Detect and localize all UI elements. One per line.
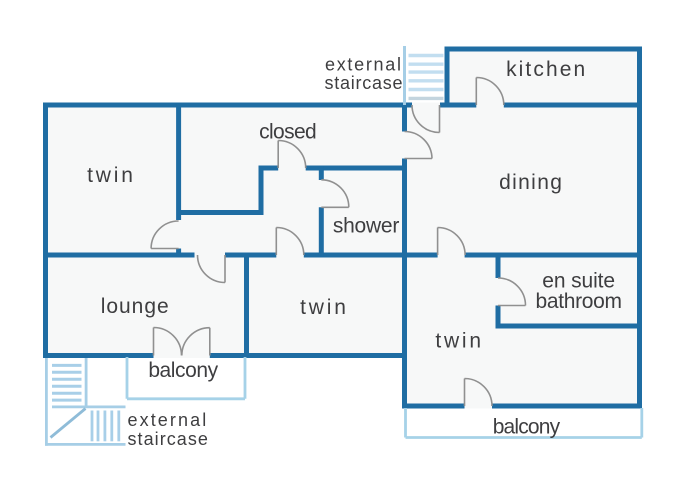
svg-text:kitchen: kitchen bbox=[506, 58, 587, 81]
svg-text:twin: twin bbox=[300, 296, 349, 319]
svg-text:dining: dining bbox=[499, 171, 563, 194]
svg-text:external: external bbox=[325, 55, 403, 75]
svg-text:closed: closed bbox=[259, 120, 316, 143]
svg-text:twin: twin bbox=[435, 330, 484, 353]
svg-text:bathroom: bathroom bbox=[536, 290, 622, 313]
svg-text:shower: shower bbox=[333, 215, 400, 238]
svg-text:balcony: balcony bbox=[493, 416, 561, 439]
svg-text:external: external bbox=[128, 410, 209, 430]
svg-text:staircase: staircase bbox=[325, 73, 404, 93]
svg-text:twin: twin bbox=[87, 164, 136, 187]
svg-text:balcony: balcony bbox=[148, 359, 218, 382]
svg-text:staircase: staircase bbox=[128, 429, 209, 449]
svg-text:lounge: lounge bbox=[101, 295, 170, 318]
